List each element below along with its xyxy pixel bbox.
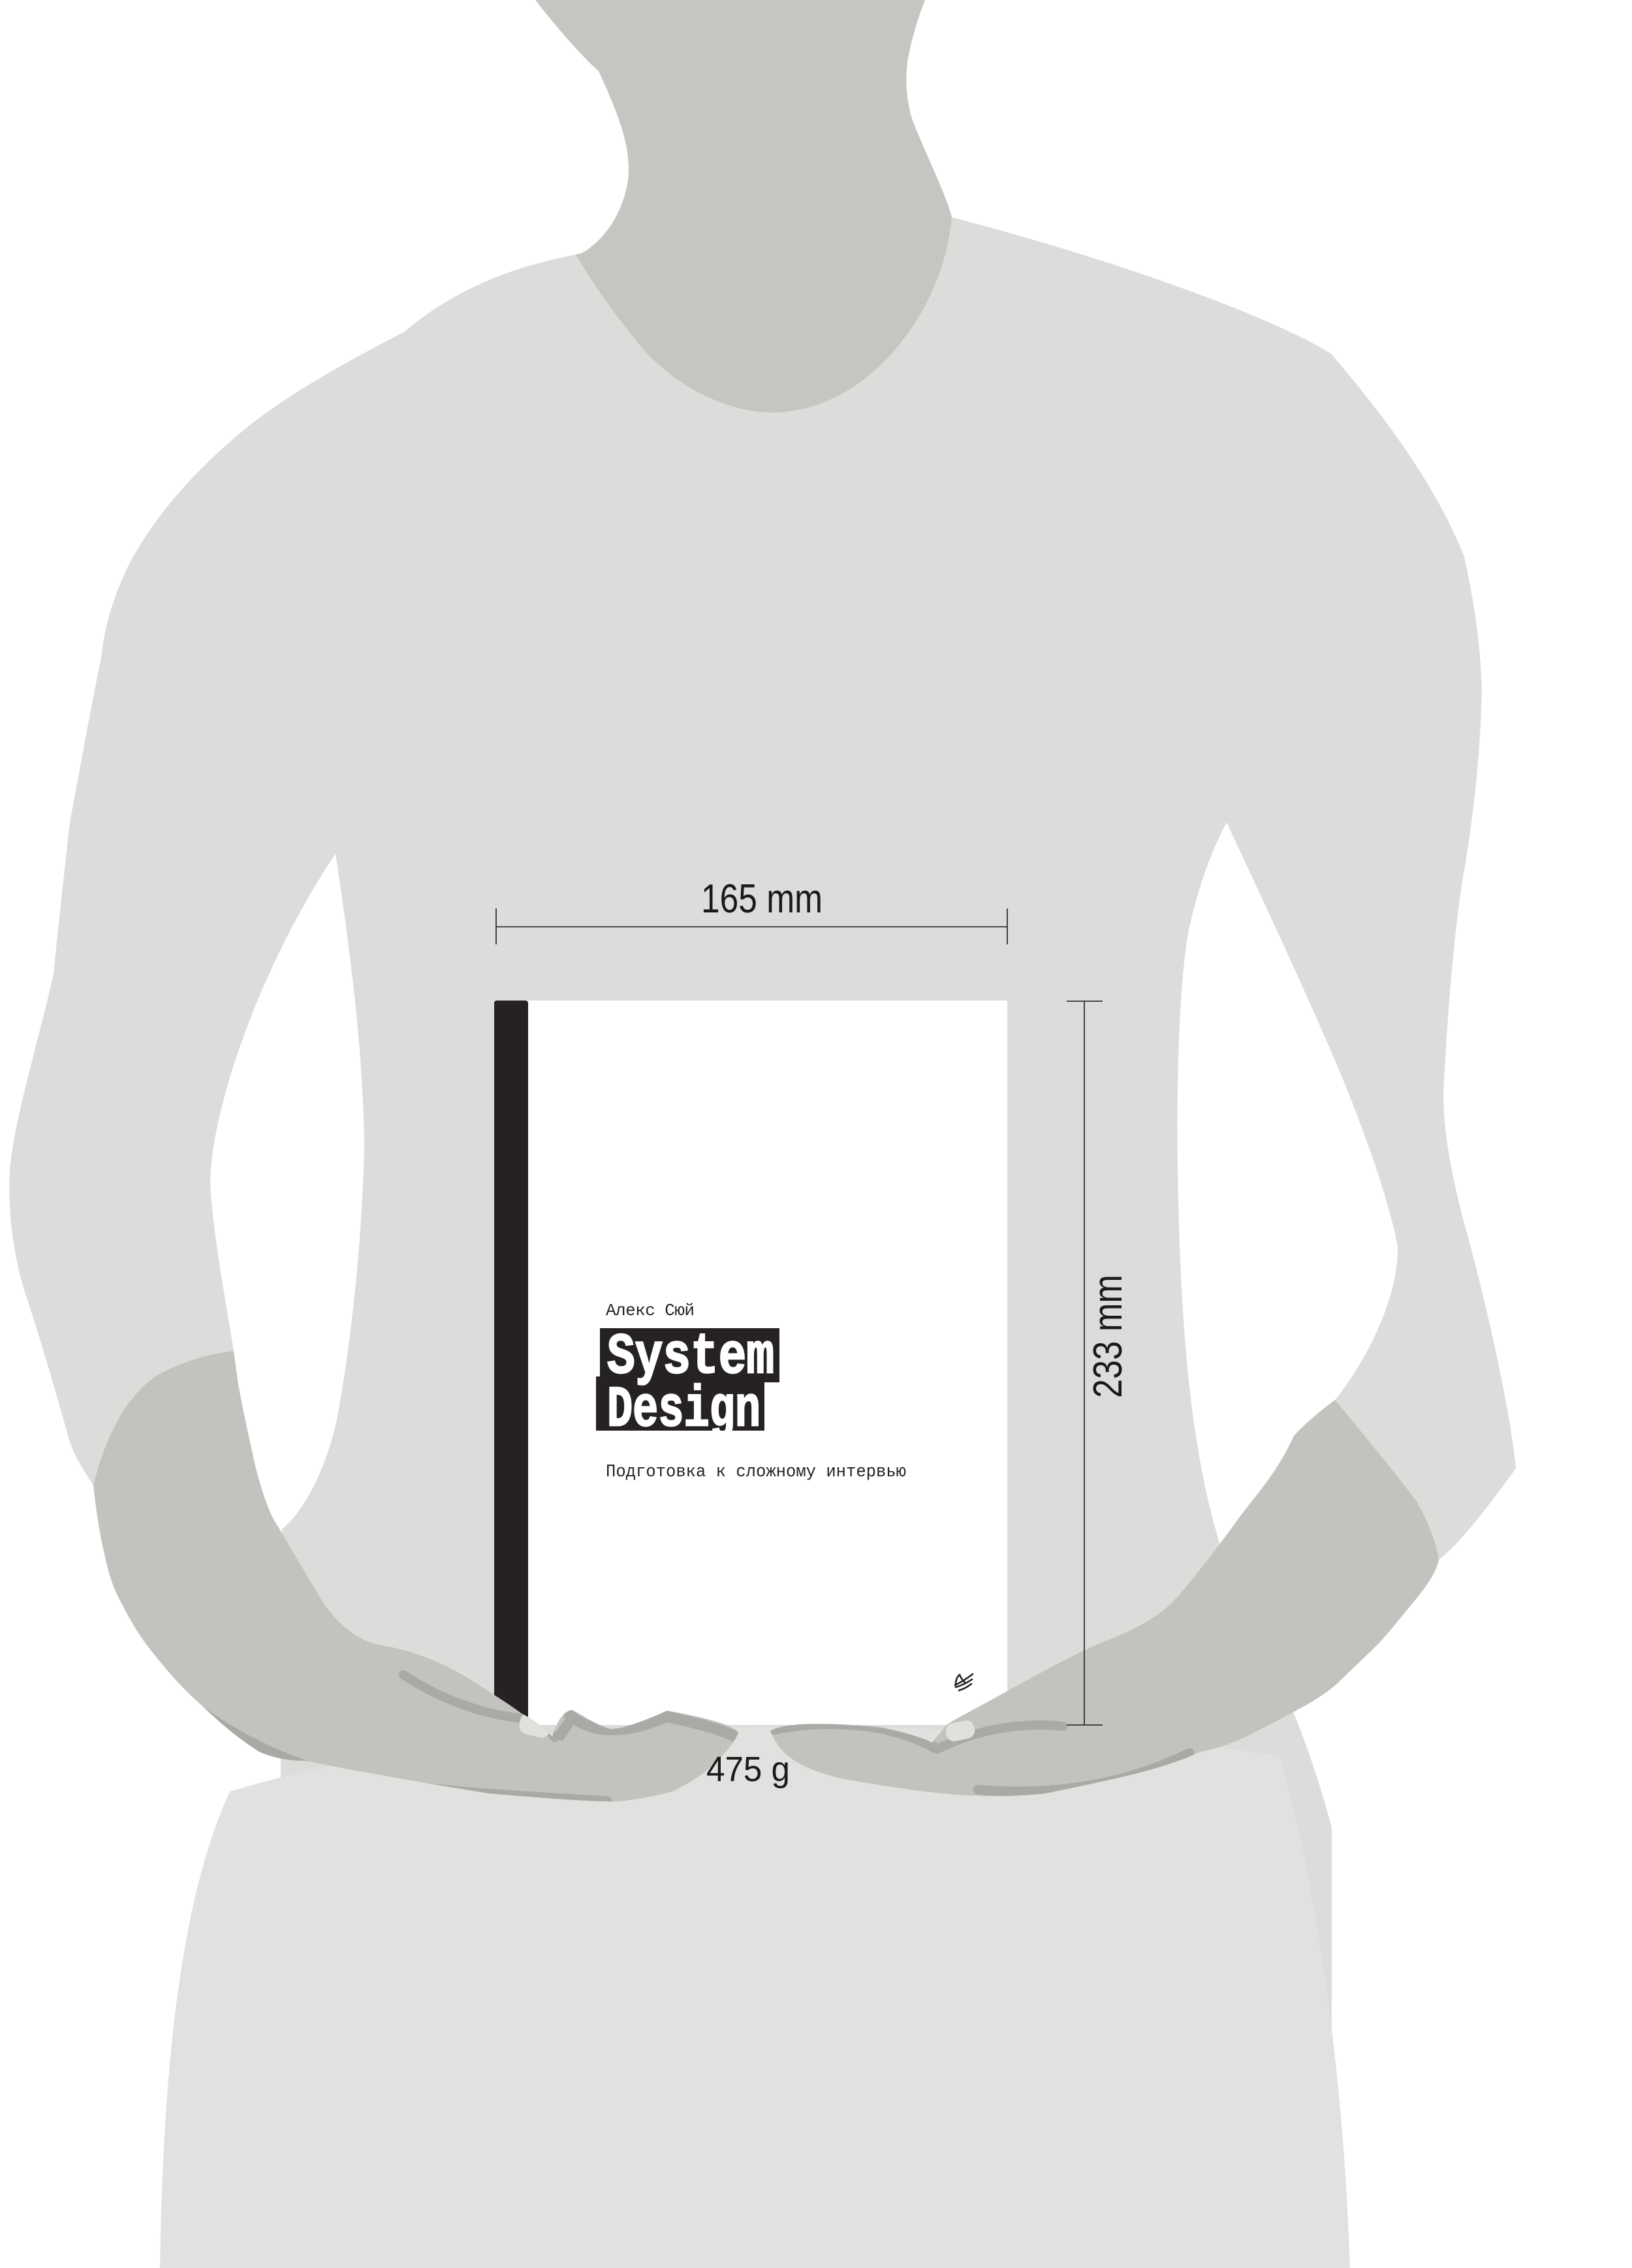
svg-text:233 mm: 233 mm — [1086, 1275, 1131, 1398]
svg-text:Подготовка к сложному интервью: Подготовка к сложному интервью — [606, 1462, 906, 1482]
svg-text:Алекс Сюй: Алекс Сюй — [606, 1301, 695, 1320]
svg-text:475 g: 475 g — [706, 1750, 790, 1789]
svg-text:165 mm: 165 mm — [701, 877, 823, 922]
